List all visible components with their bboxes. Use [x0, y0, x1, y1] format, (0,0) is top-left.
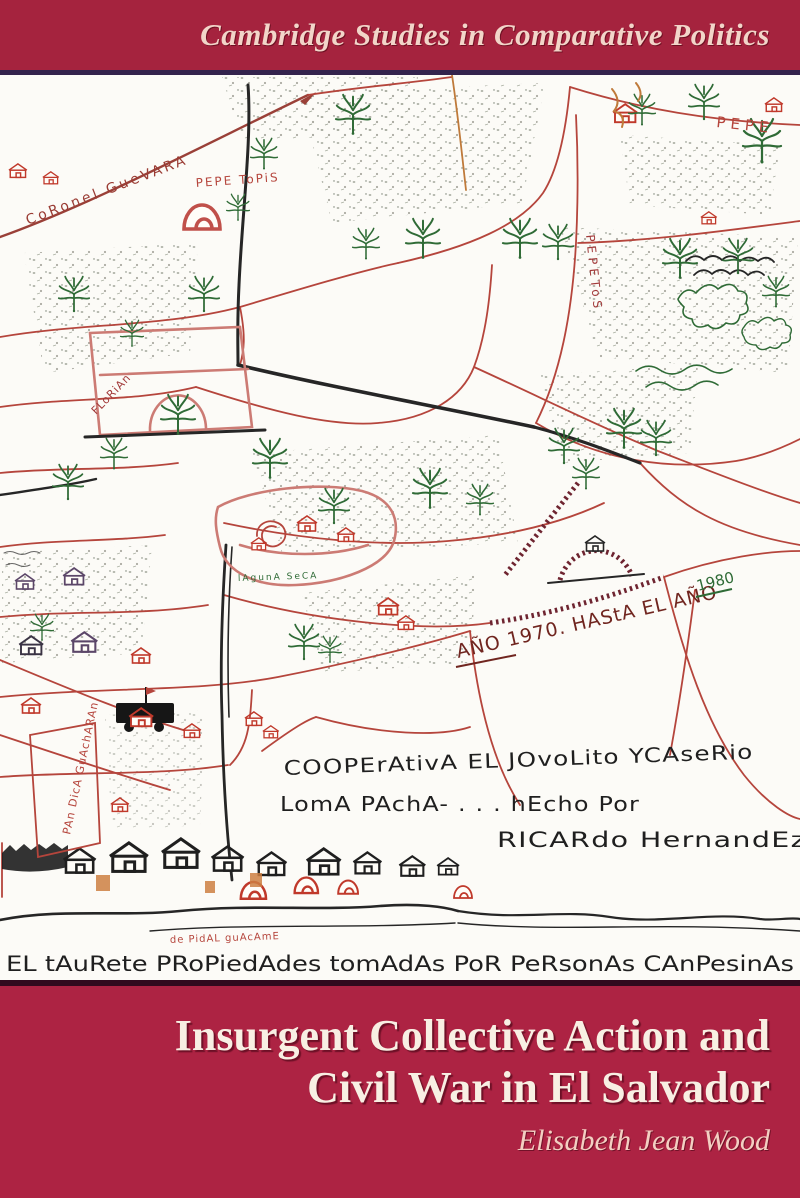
cover-art: CoRonel GueVARA PEPE ToPiS PEPE PEPEToS … [0, 75, 800, 980]
author-name: Elisabeth Jean Wood [0, 1124, 770, 1158]
map-label-pepe-hill: PEPE ToPiS [195, 170, 280, 190]
map-label-coop-line2: LomA PAchA- . . . hEcho Por [280, 792, 640, 816]
map-label-laguna: lAgunA SeCA [238, 571, 319, 584]
book-cover: Cambridge Studies in Comparative Politic… [0, 0, 800, 1198]
map-label-coronel: CoRonel GueVARA [24, 152, 190, 229]
book-title: Insurgent Collective Action and Civil Wa… [0, 1010, 770, 1114]
series-banner: Cambridge Studies in Comparative Politic… [0, 0, 800, 70]
map-label-bottom-caption: EL tAuRete PRoPiedAdes tomAdAs PoR PeRso… [6, 952, 794, 976]
map-label-pepe-corner: PEPE [716, 113, 775, 137]
series-title: Cambridge Studies in Comparative Politic… [200, 17, 770, 53]
map-label-year-range: AÑO 1970. HAStA EL AÑO [454, 580, 720, 663]
book-title-line2: Civil War in El Salvador [0, 1062, 770, 1114]
map-label-coop-line3: RICARdo HernandEz [497, 828, 800, 852]
book-title-line1: Insurgent Collective Action and [0, 1010, 770, 1062]
title-banner: Insurgent Collective Action and Civil Wa… [0, 986, 800, 1198]
map-label-coop-line1: COOPErAtivA EL JOvoLito YCAseRio [283, 740, 754, 780]
map-label-small-red: de PidAL guAcAmE [170, 931, 280, 946]
map-illustration: CoRonel GueVARA PEPE ToPiS PEPE PEPEToS … [0, 75, 800, 980]
map-label-parcel-box: PAn DicA GuAchARAn [60, 700, 101, 835]
